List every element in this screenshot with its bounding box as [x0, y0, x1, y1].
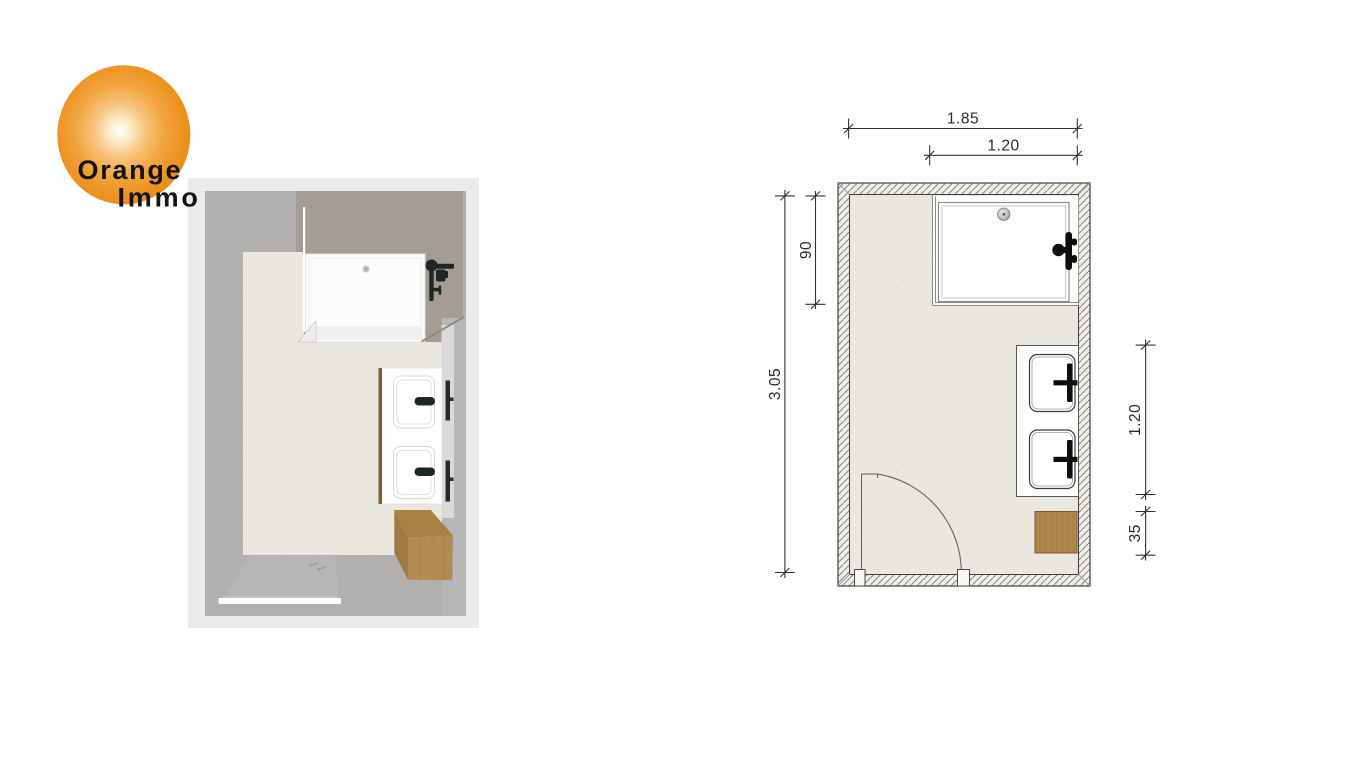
svg-text:3.05: 3.05	[767, 368, 784, 400]
svg-text:1.20: 1.20	[1127, 404, 1144, 436]
svg-text:90: 90	[798, 241, 815, 259]
svg-text:1.20: 1.20	[987, 137, 1019, 154]
svg-text:Orange: Orange	[78, 155, 183, 185]
svg-text:1.85: 1.85	[947, 111, 979, 128]
svg-text:35: 35	[1127, 524, 1144, 542]
svg-text:Immo: Immo	[118, 183, 201, 213]
